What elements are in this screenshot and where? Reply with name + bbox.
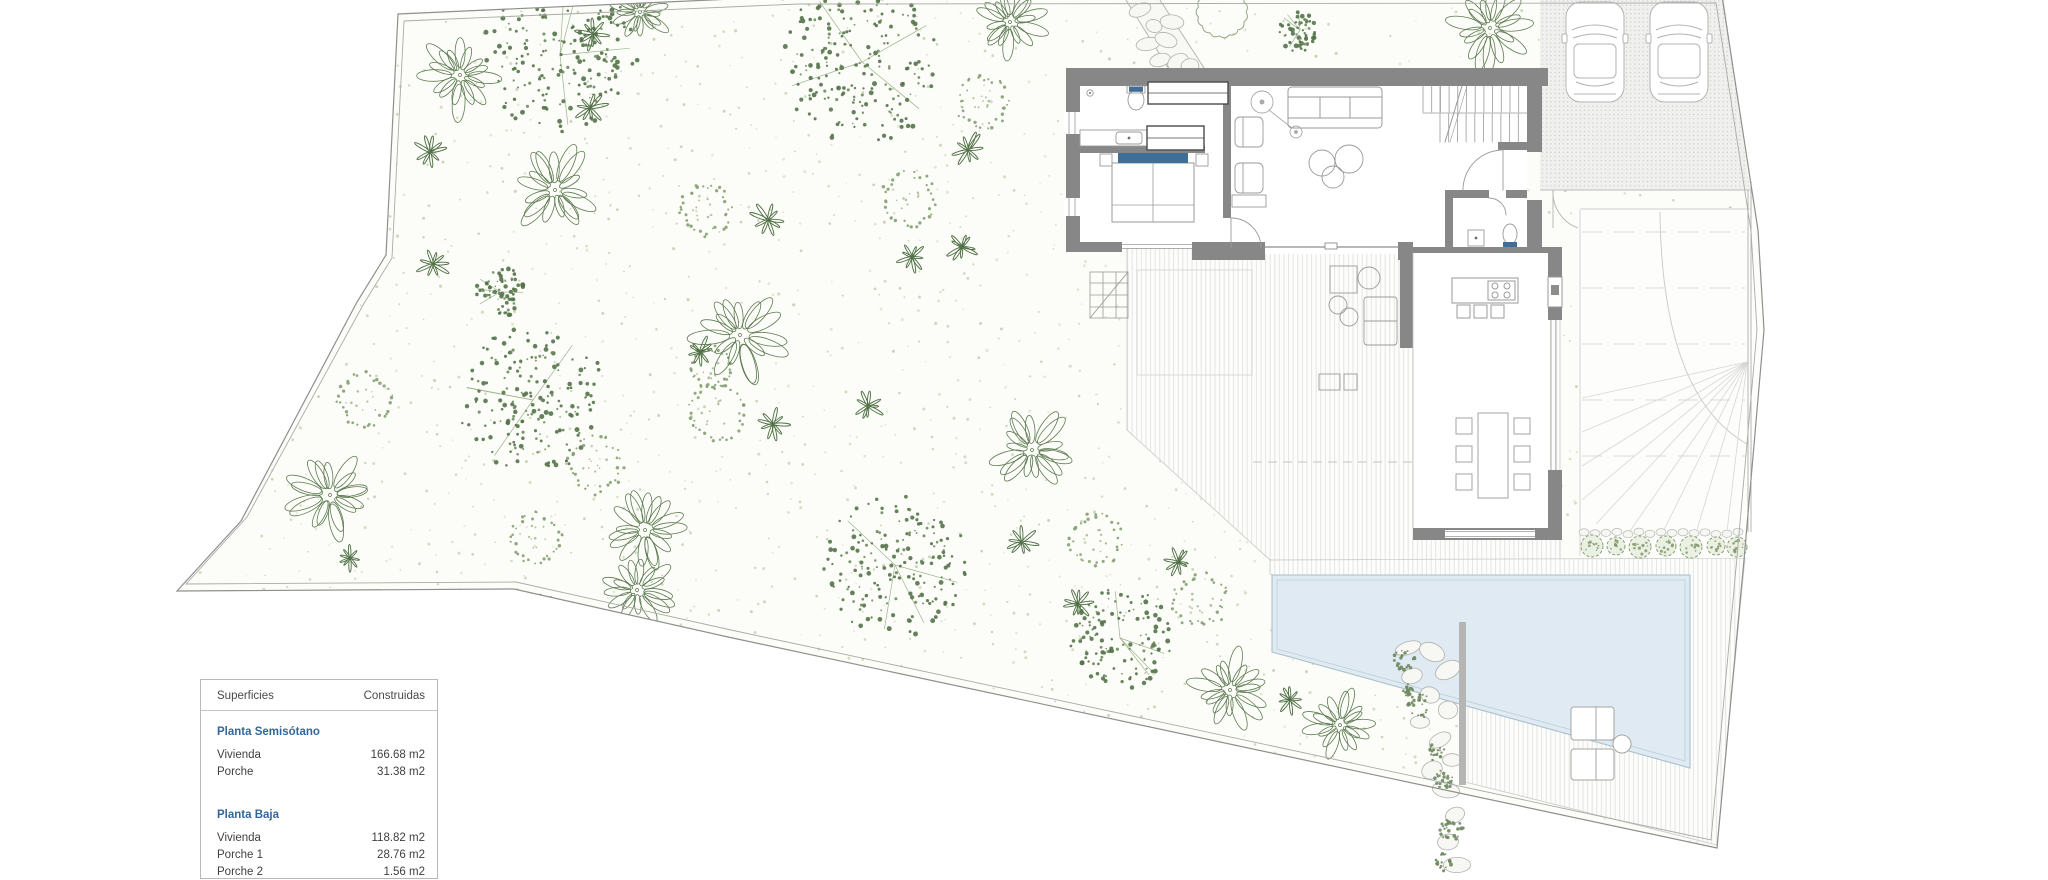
side-table [1613, 735, 1631, 753]
legend-row-value: 166.68 m2 [371, 749, 425, 762]
surface-legend-table: Superficies Construidas Planta Semisótan… [200, 679, 438, 879]
sliding-door [1265, 240, 1398, 254]
driveway [1578, 182, 1763, 558]
legend-header-col2: Construidas [364, 690, 425, 702]
legend-section-title: Planta Semisótano [217, 726, 425, 738]
bedroom-bed [1100, 153, 1208, 222]
legend-row-value: 31.38 m2 [377, 766, 425, 779]
legend-row: Porche 1 28.76 m2 [217, 849, 425, 862]
legend-row-label: Porche 2 [217, 866, 263, 879]
site-plan-canvas: Superficies Construidas Planta Semisótan… [0, 0, 2048, 880]
legend-row-label: Vivienda [217, 832, 261, 845]
legend-row: Porche 31.38 m2 [217, 766, 425, 779]
legend-row: Porche 2 1.56 m2 [217, 866, 425, 879]
legend-header: Superficies Construidas [201, 680, 437, 711]
retaining-wall [1459, 622, 1466, 785]
toilet-tank-accent [1129, 87, 1143, 92]
legend-row-label: Porche [217, 766, 253, 779]
legend-row: Vivienda 118.82 m2 [217, 832, 425, 845]
legend-row-label: Vivienda [217, 749, 261, 762]
legend-row-value: 1.56 m2 [383, 866, 425, 879]
car-icon [1646, 2, 1712, 102]
legend-row: Vivienda 166.68 m2 [217, 749, 425, 762]
legend-section-title: Planta Baja [217, 809, 425, 821]
legend-header-col1: Superficies [217, 690, 274, 702]
dining-table [1456, 413, 1530, 498]
legend-row-value: 118.82 m2 [372, 832, 426, 845]
legend-section-semisotano: Planta Semisótano Vivienda 166.68 m2 Por… [217, 726, 425, 779]
legend-row-label: Porche 1 [217, 849, 263, 862]
legend-row-value: 28.76 m2 [377, 849, 425, 862]
legend-section-baja: Planta Baja Vivienda 118.82 m2 Porche 1 … [217, 809, 425, 879]
bed-headboard-accent [1118, 153, 1188, 163]
car-icon [1562, 2, 1628, 102]
